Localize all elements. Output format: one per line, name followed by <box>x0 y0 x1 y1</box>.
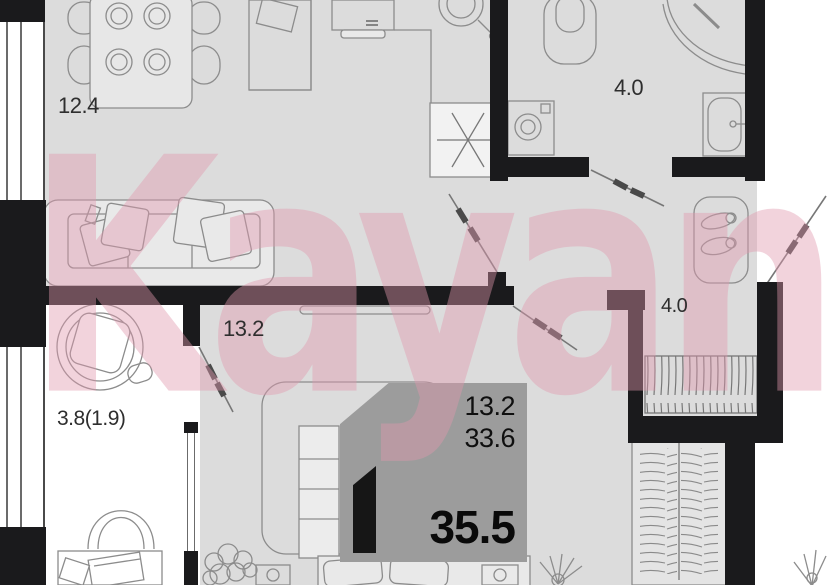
builder-logo <box>353 466 376 553</box>
total-area-value: 35.5 <box>429 500 515 554</box>
wall-segment <box>672 157 762 177</box>
shelf-cabinet-icon <box>299 426 339 558</box>
room-area-hallway: 4.0 <box>661 295 687 318</box>
tv-console-icon <box>300 306 430 314</box>
washing-machine-icon <box>508 101 554 155</box>
wall-segment <box>42 286 514 305</box>
wall-segment <box>0 527 46 585</box>
wall-segment <box>745 0 765 181</box>
plant-icon <box>540 554 582 585</box>
window <box>0 347 45 527</box>
wall-segment <box>490 157 589 177</box>
dining-set-icon <box>68 0 220 108</box>
shoe-cabinet-icon <box>694 197 748 283</box>
area-without-balcony-value: 33.6 <box>464 423 515 454</box>
plant-icon <box>203 544 257 585</box>
room-area-bathroom: 4.0 <box>614 75 643 101</box>
desk-icon <box>58 551 162 585</box>
shower-icon <box>663 0 751 74</box>
wall-segment <box>0 200 46 347</box>
toilet-icon <box>544 0 596 64</box>
wall-segment <box>757 282 783 420</box>
coat-rack-icon <box>645 356 757 413</box>
balcony-window <box>185 433 198 551</box>
wall-segment <box>183 305 200 346</box>
wall-segment <box>725 443 755 585</box>
floor-plan: 12.4 4.0 4.0 13.2 3.8(1.9) 13.2 33.6 35.… <box>0 0 828 585</box>
plant-icon <box>794 550 826 585</box>
wall-segment <box>0 0 45 22</box>
sofa-icon <box>44 197 274 286</box>
wall-segment <box>184 551 198 585</box>
wall-segment <box>490 0 508 181</box>
wardrobe-icon <box>632 431 726 585</box>
wall-segment <box>184 422 198 433</box>
wall-segment <box>628 290 643 418</box>
room-area-balcony: 3.8(1.9) <box>57 407 125 431</box>
area-summary-box: 13.2 33.6 35.5 <box>340 383 527 562</box>
wall-segment <box>628 416 783 443</box>
room-area-bedroom: 13.2 <box>223 316 264 342</box>
living-area-value: 13.2 <box>464 391 515 422</box>
kitchen-counter-icon <box>249 0 497 103</box>
desk-chair-icon <box>88 511 154 549</box>
bathroom-sink-icon <box>703 93 746 156</box>
window <box>0 22 45 200</box>
room-area-kitchen-living: 12.4 <box>58 93 99 119</box>
papasan-chair-icon <box>57 304 154 390</box>
